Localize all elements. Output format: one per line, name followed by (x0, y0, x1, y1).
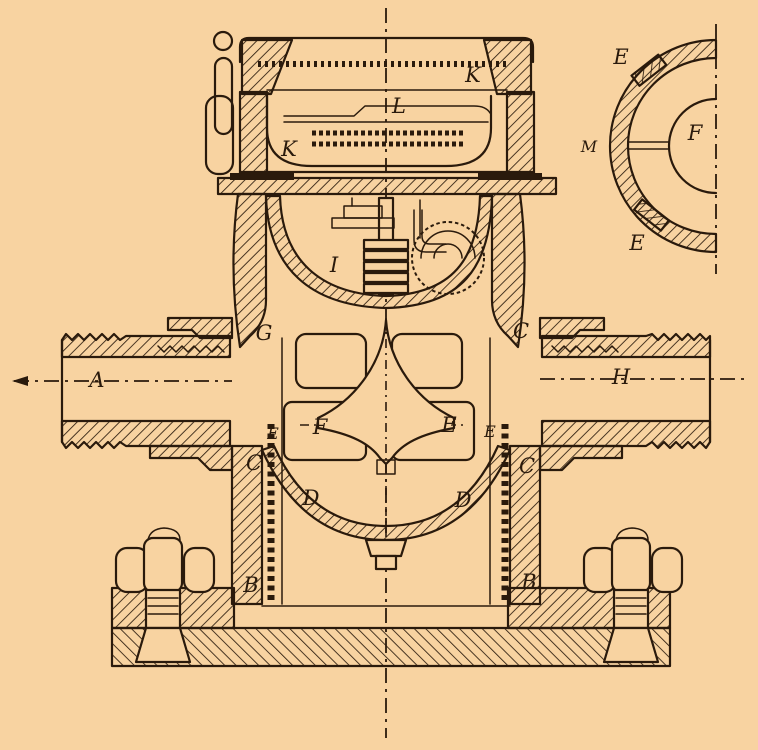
label-inlet: A (87, 368, 104, 392)
label-detail-hub: F (687, 121, 704, 145)
outlet-bottom-wall (542, 421, 710, 448)
label-bowl-right: D (454, 488, 472, 512)
cover-wall-left (240, 92, 267, 176)
joint-bar-right (478, 173, 542, 180)
cover-wall-right (507, 92, 534, 176)
seal-ring (214, 32, 232, 50)
label-port-right: E (483, 422, 496, 441)
label-cover-right: K (464, 63, 482, 87)
outlet-pipe (540, 318, 710, 470)
label-foot-right: B (520, 570, 536, 594)
label-detail-spoke: M (580, 137, 598, 156)
inlet-bottom-wall (62, 421, 230, 448)
inlet-pipe (62, 318, 232, 470)
label-chamber-right: E (440, 413, 456, 437)
wheel-hub (669, 99, 716, 193)
dial-plate (284, 106, 490, 116)
engraving-water-meter-section: K L K I G C A H E F E E C C D D B B E M … (0, 0, 758, 750)
base-plate (112, 628, 670, 666)
cover-flange-joint (218, 173, 556, 194)
label-cover-left: K (280, 137, 298, 161)
gear-chamber (233, 194, 524, 347)
turbine-chamber (262, 318, 510, 569)
drain-plug (366, 540, 406, 556)
label-detail-rim-bottom: E (628, 231, 644, 255)
outlet-union-bottom (540, 446, 622, 470)
label-dial-plate: L (391, 94, 406, 118)
label-column-right: C (519, 454, 535, 478)
label-bowl-left: D (302, 486, 320, 510)
inlet-union-bottom (150, 446, 232, 470)
label-chamber-left: F (312, 415, 329, 439)
centerline-arrow (12, 376, 28, 386)
drain-plug-stem (376, 556, 396, 569)
label-detail-rim-top: E (612, 45, 628, 69)
bolt-head-left (136, 628, 190, 662)
bolt-head-right (604, 628, 658, 662)
label-foot-left: B (242, 573, 258, 597)
label-port-left: E (266, 424, 279, 443)
label-outlet: H (611, 365, 631, 389)
worm-gear (364, 240, 408, 293)
cover-register-chamber (206, 32, 534, 176)
cover-hasp (206, 96, 233, 174)
label-casing-right: C (513, 319, 529, 343)
joint-bar-left (230, 173, 294, 180)
guide-passage-left (296, 334, 366, 388)
label-gear-chamber: I (329, 253, 339, 277)
label-column-left: C (246, 451, 262, 475)
label-casing-left: G (256, 321, 273, 345)
